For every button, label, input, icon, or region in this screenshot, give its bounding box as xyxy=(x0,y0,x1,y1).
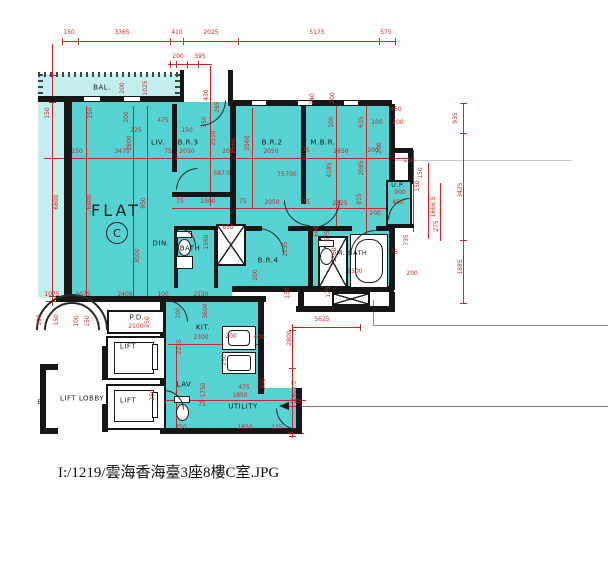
dim-label: 1750 xyxy=(201,382,207,397)
dim-label: 1025 xyxy=(143,80,149,95)
dim-label: 900 xyxy=(394,190,405,196)
wall xyxy=(180,70,184,102)
dim-label: 200 xyxy=(124,111,130,122)
dimension-tick xyxy=(170,61,171,68)
dim-label: 3600 xyxy=(203,303,209,318)
dim-label: 600 xyxy=(314,225,320,236)
dim-label: 2235 xyxy=(177,339,183,354)
dimension-tick xyxy=(360,324,361,331)
fixture-box xyxy=(227,355,251,371)
dim-label: 2650 xyxy=(333,149,348,155)
dimension-tick xyxy=(187,61,188,68)
wall xyxy=(301,106,306,204)
dim-label: 250 xyxy=(150,389,156,400)
dim-label: 100 xyxy=(176,307,182,318)
dim-label: 410 xyxy=(171,30,182,36)
dimension-line xyxy=(292,327,360,328)
dim-label: 2135 xyxy=(283,241,289,256)
dim-label: 200 xyxy=(406,271,417,277)
dim-label: 150 xyxy=(63,30,74,36)
dimension-tick xyxy=(49,102,56,103)
dim-label: 200 xyxy=(377,142,383,153)
window-notch xyxy=(252,101,266,105)
dim-label: 635 xyxy=(359,116,365,127)
dim-label: 3365 xyxy=(114,30,129,36)
dim-label: 450 xyxy=(392,200,403,206)
dimension-line xyxy=(252,108,253,208)
dimension-tick xyxy=(460,240,467,241)
dim-label: 950 xyxy=(141,197,147,208)
dim-label: 2100 xyxy=(128,324,143,330)
dimension-line xyxy=(147,106,148,298)
room-label: LIFT xyxy=(120,398,136,405)
dim-label: 150 xyxy=(88,107,94,118)
dim-label: 100 xyxy=(37,314,43,325)
dim-label: 100 xyxy=(371,120,382,126)
room-label: ER xyxy=(37,399,47,406)
dim-label: 1075 xyxy=(44,292,59,298)
dim-label: 2510 xyxy=(211,130,217,145)
wall xyxy=(389,228,395,290)
dim-label: 2050 xyxy=(179,149,194,155)
wall xyxy=(308,228,313,288)
dim-label: 100 xyxy=(157,292,168,298)
dim-label: 150 xyxy=(202,116,208,127)
wall xyxy=(40,364,58,370)
dim-label: 75 xyxy=(176,199,184,205)
wall xyxy=(172,104,177,172)
dim-label: 2560 xyxy=(245,135,251,150)
room-label: UTILITY xyxy=(228,404,257,411)
room-label: B.R.3 xyxy=(178,140,199,147)
dim-label: 200 xyxy=(172,54,183,60)
room-label: B.R.4 xyxy=(258,258,279,265)
dim-label: 150 xyxy=(71,149,82,155)
dimension-line xyxy=(176,346,177,434)
dim-label: 3425 xyxy=(458,182,464,197)
dim-label: 150 xyxy=(415,180,421,191)
dim-label: 430 xyxy=(204,89,210,100)
room-label: FLAT xyxy=(91,203,141,219)
dim-label: 225 xyxy=(130,128,141,134)
dim-label: 1850 xyxy=(237,425,252,431)
dim-label: 4185 xyxy=(327,162,333,177)
fixture-box xyxy=(176,256,193,269)
fixture-box xyxy=(114,390,154,422)
dimension-tick xyxy=(289,436,296,437)
room-label: LIFT LOBBY xyxy=(60,396,104,403)
dim-label: 2085 xyxy=(359,160,365,175)
fixture-box xyxy=(152,344,158,370)
dim-label: 475 xyxy=(238,385,249,391)
room-label: B.R.2 xyxy=(262,140,283,147)
dim-label: 575 xyxy=(325,230,331,241)
dim-label: 125 xyxy=(271,425,282,431)
dimension-tick xyxy=(460,303,467,304)
wall xyxy=(296,306,395,312)
dim-label: 1560 xyxy=(204,234,210,249)
dim-label: 5625 xyxy=(314,317,329,323)
wall xyxy=(389,292,395,308)
dim-label: 150 xyxy=(403,158,414,164)
dim-label: 5175 xyxy=(309,30,324,36)
dim-label: 2400 xyxy=(117,292,132,298)
leader-line xyxy=(373,325,608,326)
dim-label: 150 xyxy=(285,287,291,298)
dimension-tick xyxy=(183,38,184,45)
dim-label: 2150 xyxy=(193,292,208,298)
dim-label: 935 xyxy=(453,112,459,123)
dim-label: 100 xyxy=(74,315,80,326)
dim-label: 475 xyxy=(157,118,168,124)
wall xyxy=(172,192,234,197)
dim-label: 1850 xyxy=(232,393,247,399)
dimension-tick xyxy=(198,61,199,68)
dim-label: 240 xyxy=(310,93,316,104)
room-label: LAV xyxy=(177,382,192,389)
window-notch xyxy=(344,101,358,105)
balcony-hatch xyxy=(38,72,180,77)
dim-label: 700 xyxy=(285,172,296,178)
dim-label: 125 xyxy=(326,286,332,297)
dim-label: 1885 xyxy=(458,259,464,274)
dim-label: 200 xyxy=(253,269,259,280)
dim-label: 2025 xyxy=(203,30,218,36)
dim-label: 735 xyxy=(404,234,410,245)
room-label: U.P. xyxy=(391,182,405,189)
dimension-tick xyxy=(379,38,380,45)
room-label: M.B.R. xyxy=(310,140,335,147)
caption: I:/1219/雲海香海臺3座8樓C室.JPG xyxy=(58,461,279,482)
wall xyxy=(38,96,184,102)
dimension-line xyxy=(52,44,53,306)
section-arrow xyxy=(279,402,289,410)
dim-label: 200 xyxy=(225,334,236,340)
dimension-tick xyxy=(289,406,296,407)
room-block xyxy=(66,100,176,300)
dimension-tick xyxy=(238,38,239,45)
dim-label: 6800 xyxy=(54,194,60,209)
wall xyxy=(228,70,233,106)
window-notch xyxy=(124,97,140,101)
leader-line xyxy=(285,406,608,407)
dimension-tick xyxy=(170,38,171,45)
dim-label: 75 xyxy=(302,200,310,206)
wall xyxy=(408,150,413,184)
dim-label: 300 xyxy=(261,378,267,389)
dim-label: 1075 xyxy=(75,292,90,298)
room-label: LIV. xyxy=(151,140,165,147)
dim-label: 75 xyxy=(277,172,285,178)
dim-label: 150 xyxy=(181,128,192,134)
dimension-line xyxy=(62,41,395,42)
dim-label: 3000 xyxy=(135,248,141,263)
dimension-tick xyxy=(460,103,467,104)
room-label: M. BATH xyxy=(337,250,368,257)
dim-label: 275 xyxy=(434,220,440,231)
dimension-line xyxy=(428,163,429,239)
dim-label: 200 xyxy=(369,211,380,217)
dim-label: 200 xyxy=(120,82,126,93)
dim-label: 75 xyxy=(390,250,398,256)
dimension-tick xyxy=(62,38,63,45)
dimension-tick xyxy=(289,368,296,369)
dim-label: 2800 xyxy=(127,135,133,150)
dim-label: 2300 xyxy=(193,335,208,341)
wall xyxy=(40,428,58,434)
room-label: BATH xyxy=(180,246,201,253)
dim-label: 75 xyxy=(164,149,172,155)
room-label: KIT. xyxy=(196,325,210,332)
dim-label: 150 xyxy=(418,167,424,178)
dim-label: 200 xyxy=(222,149,233,155)
dim-label: 200 xyxy=(330,92,336,103)
dimension-line xyxy=(440,183,441,241)
wall xyxy=(230,104,236,228)
dim-label: 265 xyxy=(215,101,221,112)
dim-label: 1602.5 xyxy=(292,381,298,402)
dim-label: 395 xyxy=(194,54,205,60)
room-label: DIN. xyxy=(153,241,170,248)
dim-label: 2800 xyxy=(287,330,293,345)
wall xyxy=(64,100,72,298)
dim-label: 750 xyxy=(175,425,186,431)
dimension-tick xyxy=(460,133,467,134)
dim-label: 575 xyxy=(380,30,391,36)
dim-label: 150 xyxy=(45,107,51,118)
shaft-x-box xyxy=(332,292,370,306)
dim-label: 2300 xyxy=(200,199,215,205)
dim-label: 400 xyxy=(253,335,264,341)
dim-label: 250 xyxy=(222,354,228,365)
dim-label: 587.5 xyxy=(213,171,230,177)
dimension-tick xyxy=(176,61,177,68)
dim-label: 2525 xyxy=(332,201,347,207)
dim-label: 2050 xyxy=(264,200,279,206)
dimension-tick xyxy=(395,38,396,45)
flat-unit-letter: C xyxy=(106,222,128,244)
dim-label: 450 xyxy=(390,107,401,113)
dim-label: 150 xyxy=(54,314,60,325)
dimension-tick xyxy=(49,75,56,76)
dim-label: 200 xyxy=(392,120,403,126)
dim-label: 75 xyxy=(302,148,310,154)
dimension-line xyxy=(44,158,410,159)
floor-plan-page: 1503365410202551755752003952001025150150… xyxy=(0,0,608,570)
dimension-line xyxy=(172,208,392,209)
dim-label: 75 xyxy=(239,199,247,205)
dim-label: 1666.5 xyxy=(431,197,437,218)
leader-line xyxy=(373,300,374,325)
dimension-line xyxy=(168,64,212,65)
dim-label: 150 xyxy=(85,315,91,326)
dim-label: 5 xyxy=(289,431,295,435)
dimension-tick xyxy=(78,38,79,45)
floor-plan: 1503365410202551755752003952001025150150… xyxy=(0,0,608,460)
window-notch xyxy=(84,97,100,101)
dim-label: 100 xyxy=(329,116,335,127)
dim-label: 75 xyxy=(198,402,206,408)
room-label: BAL. xyxy=(93,85,111,92)
leader-line xyxy=(392,160,572,161)
dim-label: 250 xyxy=(145,316,151,327)
room-label: P.D. xyxy=(130,315,145,322)
wall xyxy=(160,296,266,302)
dim-label: 815 xyxy=(357,193,363,204)
dim-label: 850 xyxy=(222,225,233,231)
dim-label: 1500 xyxy=(347,269,362,275)
room-label: LIFT xyxy=(120,344,136,351)
dim-label: 2050 xyxy=(263,149,278,155)
